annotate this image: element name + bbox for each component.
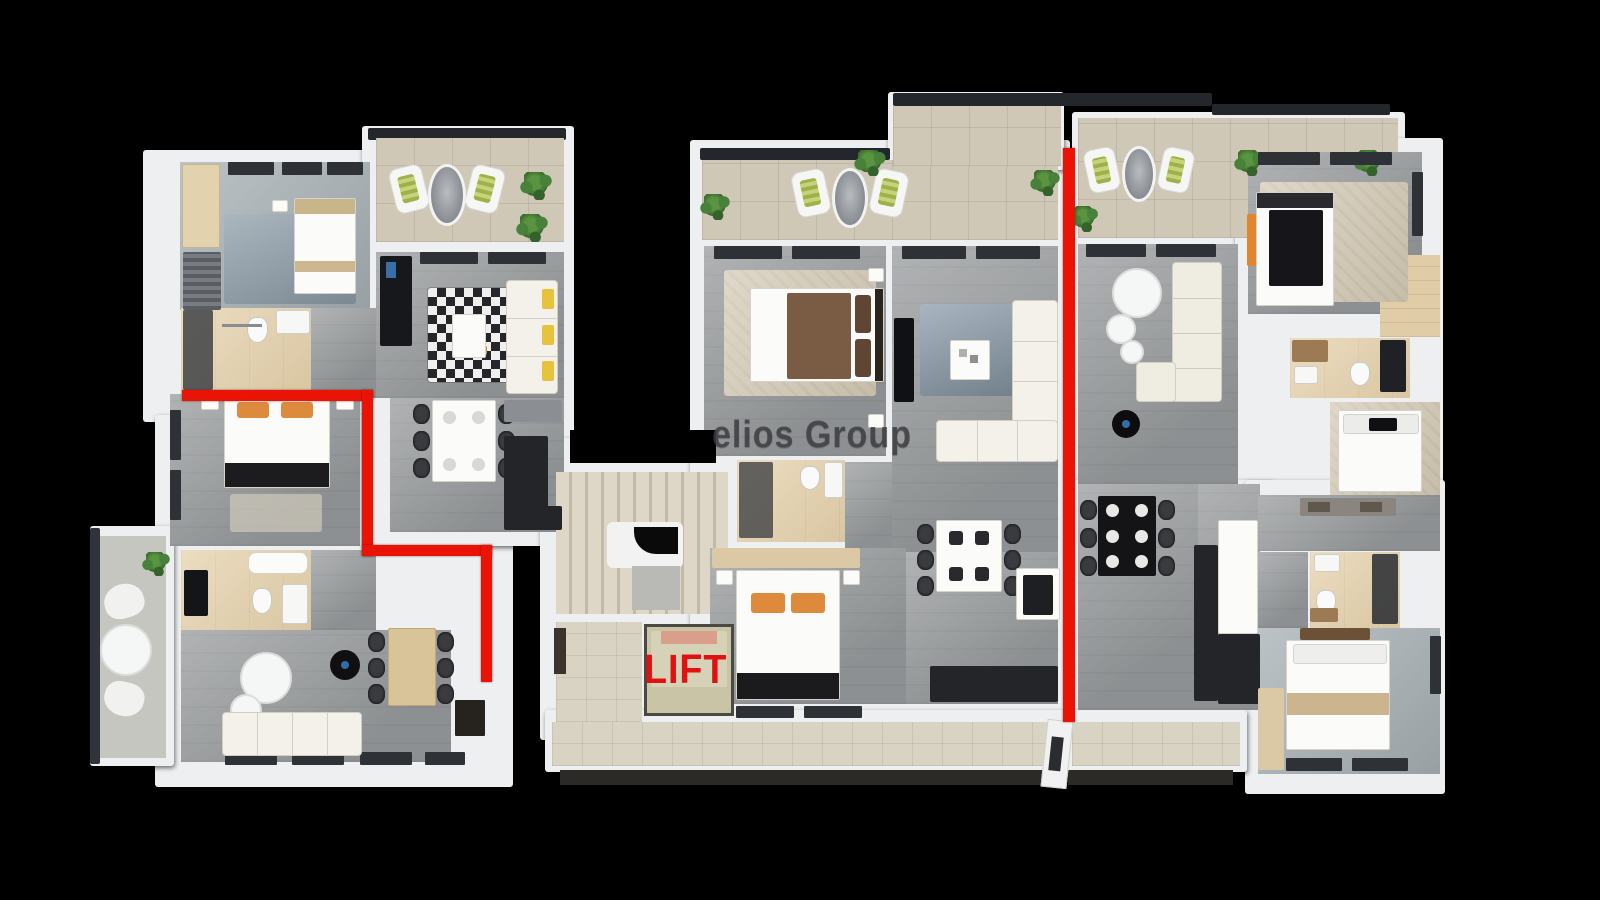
- chair: [437, 632, 454, 652]
- kitchen-counter: [504, 506, 562, 530]
- closet: [1258, 688, 1284, 770]
- nightstand: [843, 570, 860, 585]
- chair: [917, 576, 934, 596]
- sink: [1294, 366, 1318, 384]
- sink: [276, 310, 310, 334]
- door-frame: [554, 628, 566, 674]
- vanity: [1292, 340, 1328, 362]
- unit-boundary-line: [362, 545, 492, 556]
- tv-unit: [184, 570, 208, 616]
- window: [804, 706, 862, 718]
- stair-mid: [632, 566, 680, 610]
- shower: [1380, 340, 1406, 392]
- balcony-table: [1122, 146, 1156, 202]
- chair: [368, 632, 385, 652]
- balcony-table: [428, 164, 466, 226]
- dining-table: [432, 400, 496, 482]
- core-hall: [556, 622, 642, 722]
- kitchen-counter: [1194, 545, 1218, 701]
- dresser: [1300, 628, 1370, 640]
- tv-unit: [380, 256, 412, 346]
- plant-icon: [146, 552, 166, 572]
- chair: [368, 658, 385, 678]
- window: [736, 706, 794, 718]
- window: [327, 162, 363, 175]
- window: [714, 246, 782, 259]
- coffee-table: [1120, 340, 1144, 364]
- bed: [750, 288, 884, 382]
- toilet: [800, 466, 820, 490]
- left-hallway-2: [311, 550, 376, 630]
- center-balcony-upper: [893, 106, 1061, 166]
- plant-icon: [520, 214, 544, 238]
- rug: [230, 494, 322, 532]
- window: [976, 246, 1040, 259]
- window: [1286, 758, 1342, 771]
- left-hallway: [311, 308, 376, 398]
- right-walkway: [1072, 722, 1240, 766]
- chair: [1004, 524, 1021, 544]
- plant-icon: [858, 150, 882, 172]
- right-hall: [1258, 552, 1308, 628]
- kitchen-counter: [504, 436, 548, 512]
- chair: [1080, 556, 1097, 576]
- sofa: [1136, 362, 1176, 402]
- window: [1412, 172, 1423, 236]
- lift-label: LIFT: [644, 646, 727, 693]
- window: [1156, 244, 1216, 257]
- bed: [224, 396, 330, 488]
- window: [360, 752, 412, 765]
- unit-boundary-line: [1063, 148, 1075, 722]
- window: [1330, 152, 1392, 165]
- bathtub: [248, 552, 308, 574]
- nightstand: [272, 200, 288, 212]
- chair: [413, 458, 430, 478]
- window: [792, 246, 860, 259]
- chair: [437, 658, 454, 678]
- balcony-glass-rail: [893, 93, 1212, 106]
- sofa: [1172, 262, 1222, 402]
- toilet: [252, 588, 272, 614]
- sink: [282, 584, 308, 624]
- window: [282, 162, 322, 175]
- closet: [183, 252, 221, 310]
- bed: [1256, 192, 1334, 306]
- kitchen-island: [1218, 520, 1258, 634]
- unit-boundary-line: [182, 390, 373, 401]
- bench: [1247, 214, 1256, 266]
- window: [1258, 152, 1320, 165]
- shower: [183, 310, 213, 390]
- chair: [368, 684, 385, 704]
- toilet: [1350, 362, 1370, 386]
- chair: [1004, 550, 1021, 570]
- sofa: [222, 712, 362, 756]
- dresser: [1300, 498, 1396, 516]
- watermark: elios Group: [712, 414, 912, 457]
- kitchen-counter: [1218, 634, 1260, 704]
- shelf: [1310, 608, 1338, 622]
- kitchen-upper: [504, 400, 562, 422]
- closet: [712, 548, 860, 568]
- chair: [1158, 500, 1175, 520]
- coffee-table: [950, 340, 990, 380]
- bed: [1338, 410, 1422, 492]
- chair: [917, 524, 934, 544]
- wardrobe: [182, 164, 220, 248]
- tv-unit: [894, 318, 914, 402]
- walkway-shadow: [560, 770, 1055, 785]
- chair: [413, 404, 430, 424]
- window: [425, 752, 465, 765]
- window: [1430, 636, 1441, 694]
- floor-plan: LIFT: [0, 0, 1600, 900]
- balcony-table: [832, 168, 868, 228]
- toilet: [247, 317, 268, 343]
- window: [420, 252, 478, 264]
- window: [902, 246, 966, 259]
- nightstand: [716, 570, 733, 585]
- balcony-glass-rail: [90, 528, 100, 764]
- balcony-glass-rail: [1212, 104, 1390, 115]
- decor: [386, 262, 396, 278]
- window: [170, 410, 181, 460]
- center-walkway: [552, 722, 1060, 766]
- chair: [413, 431, 430, 451]
- window: [1086, 244, 1146, 257]
- window: [170, 470, 181, 520]
- chair: [1080, 528, 1097, 548]
- chair: [1080, 500, 1097, 520]
- dining-table: [1098, 496, 1156, 576]
- walkway-shadow: [1068, 770, 1233, 785]
- sofa: [936, 420, 1058, 462]
- plant-icon: [524, 172, 548, 196]
- bed: [736, 570, 840, 700]
- sofa: [506, 280, 558, 394]
- sink: [1314, 554, 1340, 572]
- stove: [1016, 568, 1060, 620]
- chair: [917, 550, 934, 570]
- chair: [437, 684, 454, 704]
- window: [228, 162, 274, 175]
- bed: [1286, 640, 1390, 750]
- record-player: [330, 650, 360, 680]
- coffee-table: [452, 314, 486, 358]
- kitchen-counter: [930, 666, 1058, 702]
- plant-icon: [1034, 170, 1056, 192]
- window: [488, 252, 546, 264]
- dining-table: [388, 628, 436, 706]
- unit-boundary-line: [362, 390, 373, 556]
- shower: [1372, 554, 1398, 624]
- dining-table: [936, 520, 1002, 592]
- chair: [1158, 528, 1175, 548]
- plant-icon: [1238, 150, 1260, 172]
- towel-bar: [222, 324, 262, 327]
- chair: [1158, 556, 1175, 576]
- window: [1352, 758, 1408, 771]
- center-corridor: [845, 462, 892, 554]
- nightstand: [868, 268, 884, 282]
- outdoor-table: [100, 624, 152, 676]
- plant-icon: [1074, 206, 1094, 228]
- plant-icon: [704, 194, 726, 216]
- stair-opening: [570, 430, 716, 463]
- shower: [739, 462, 773, 538]
- sink: [824, 462, 843, 498]
- bed: [294, 198, 356, 294]
- entry-door: [455, 700, 485, 736]
- record-player: [1112, 410, 1140, 438]
- unit-boundary-line: [481, 545, 492, 682]
- coffee-table: [1112, 268, 1162, 318]
